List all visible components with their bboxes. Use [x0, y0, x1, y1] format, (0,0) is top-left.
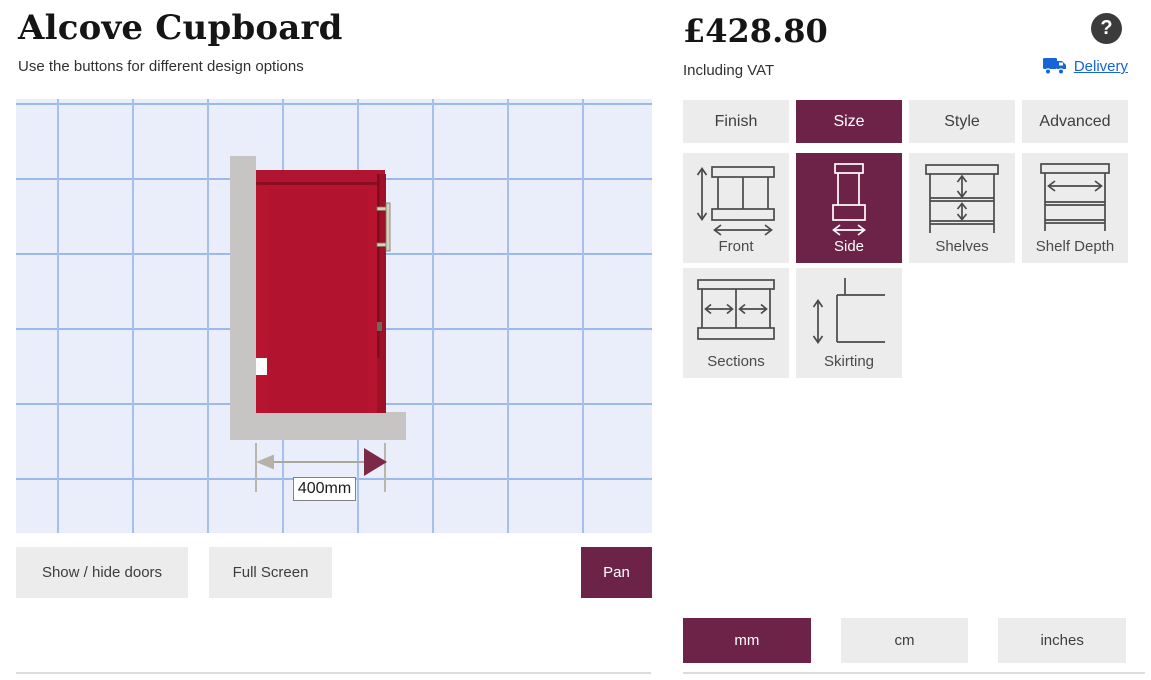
- option-tabs: Finish Size Style Advanced: [683, 100, 1128, 143]
- unit-cm[interactable]: cm: [841, 618, 969, 663]
- size-option-shelves[interactable]: Shelves: [909, 153, 1015, 263]
- tab-style[interactable]: Style: [909, 100, 1015, 143]
- unit-selector: mm cm inches: [683, 618, 1126, 663]
- dimension-drag-handle[interactable]: [364, 448, 387, 476]
- dimension-value-label[interactable]: 400mm: [293, 477, 356, 501]
- configurator-window: Alcove Cupboard Use the buttons for diff…: [0, 0, 1151, 680]
- design-panel: Alcove Cupboard Use the buttons for diff…: [16, 0, 652, 680]
- size-option-skirting[interactable]: Skirting: [796, 268, 902, 378]
- size-option-label: Skirting: [796, 353, 902, 370]
- skirting-dimension-icon: [805, 274, 893, 354]
- shelves-dimension-icon: [918, 159, 1006, 239]
- price-value: £428.80: [683, 12, 828, 50]
- sections-dimension-icon: [692, 274, 780, 354]
- shelf-depth-dimension-icon: [1031, 159, 1119, 239]
- tab-advanced[interactable]: Advanced: [1022, 100, 1128, 143]
- left-divider: [16, 672, 651, 674]
- delivery-label: Delivery: [1074, 58, 1128, 75]
- full-screen-button[interactable]: Full Screen: [209, 547, 332, 598]
- size-option-grid: Front Side: [683, 153, 1128, 378]
- size-option-label: Front: [683, 238, 789, 255]
- show-hide-doors-button[interactable]: Show / hide doors: [16, 547, 188, 598]
- delivery-link[interactable]: Delivery: [1043, 58, 1128, 75]
- truck-icon: [1043, 58, 1067, 75]
- size-option-label: Shelf Depth: [1022, 238, 1128, 255]
- unit-mm[interactable]: mm: [683, 618, 811, 663]
- cupboard-side-view: [16, 99, 652, 533]
- tab-size[interactable]: Size: [796, 100, 902, 143]
- pan-button[interactable]: Pan: [581, 547, 652, 598]
- tab-finish[interactable]: Finish: [683, 100, 789, 143]
- help-icon[interactable]: ?: [1091, 13, 1122, 44]
- page-subtitle: Use the buttons for different design opt…: [18, 58, 304, 75]
- vat-note: Including VAT: [683, 62, 774, 79]
- size-option-front[interactable]: Front: [683, 153, 789, 263]
- unit-inches[interactable]: inches: [998, 618, 1126, 663]
- size-option-label: Sections: [683, 353, 789, 370]
- front-dimension-icon: [692, 159, 780, 239]
- size-option-label: Shelves: [909, 238, 1015, 255]
- design-canvas[interactable]: 400mm: [16, 99, 652, 533]
- cupboard-body: [256, 170, 386, 413]
- page-title: Alcove Cupboard: [18, 8, 343, 48]
- options-panel: £428.80 Including VAT ? Delivery Finish …: [683, 0, 1128, 680]
- size-option-sections[interactable]: Sections: [683, 268, 789, 378]
- size-option-side[interactable]: Side: [796, 153, 902, 263]
- viewer-toolbar: Show / hide doors Full Screen Pan: [16, 547, 652, 598]
- size-option-shelf-depth[interactable]: Shelf Depth: [1022, 153, 1128, 263]
- size-option-label: Side: [796, 238, 902, 255]
- side-dimension-icon: [805, 159, 893, 239]
